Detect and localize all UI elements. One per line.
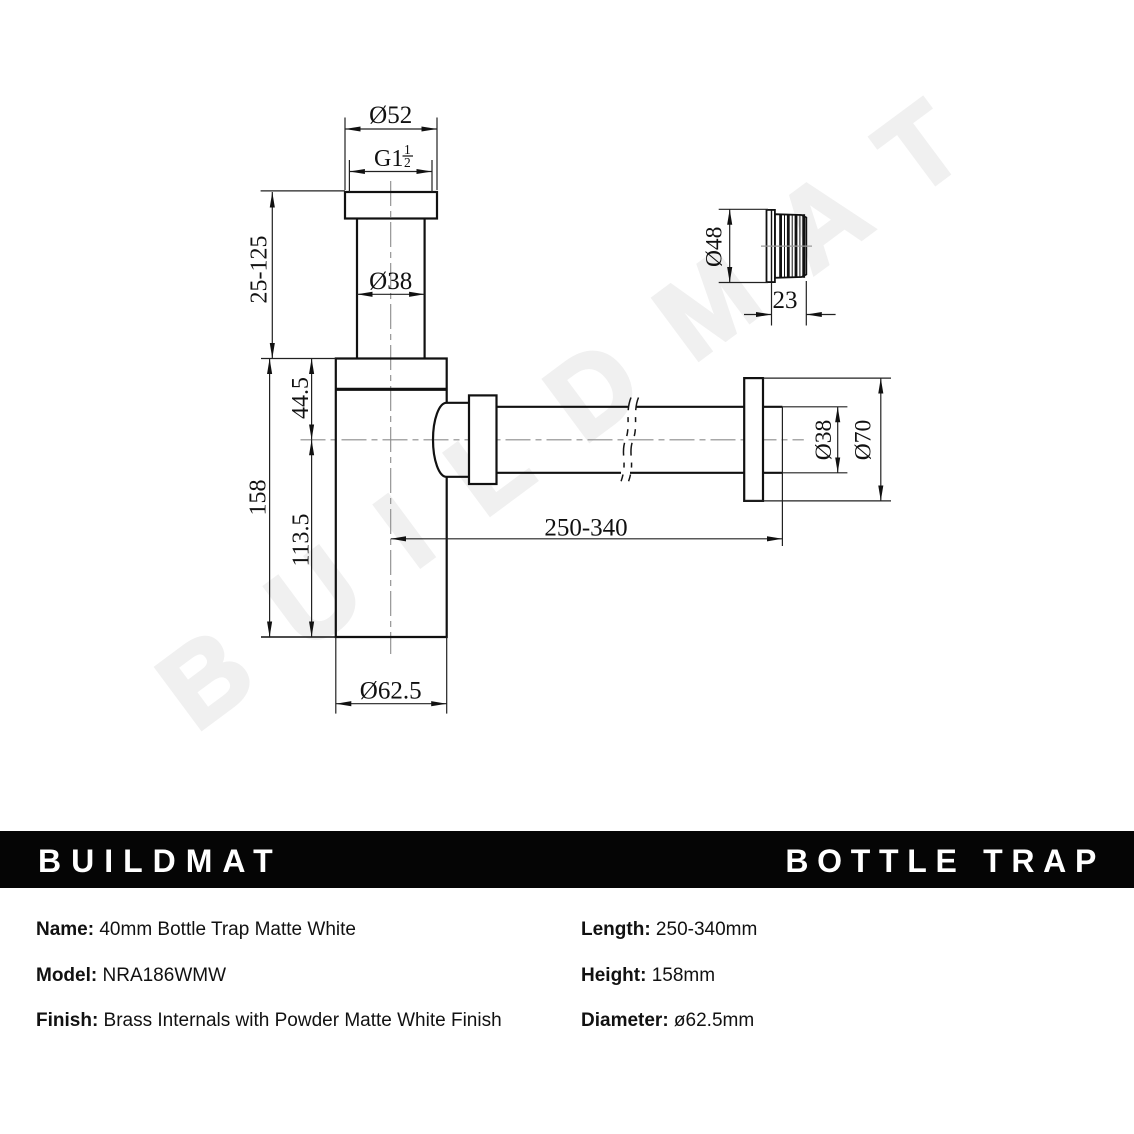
svg-text:Ø48: Ø48	[702, 227, 728, 267]
svg-text:250-340: 250-340	[544, 515, 627, 542]
svg-text:Ø52: Ø52	[369, 102, 412, 129]
svg-text:Ø38: Ø38	[811, 420, 837, 460]
svg-text:44.5: 44.5	[288, 377, 314, 419]
svg-text:2: 2	[404, 155, 411, 170]
svg-text:Ø70: Ø70	[851, 420, 877, 460]
svg-text:158: 158	[246, 480, 272, 516]
svg-text:Ø38: Ø38	[369, 268, 412, 295]
svg-text:23: 23	[773, 287, 798, 314]
svg-text:113.5: 113.5	[289, 513, 315, 566]
svg-text:25-125: 25-125	[247, 236, 273, 304]
svg-text:Ø62.5: Ø62.5	[360, 678, 422, 705]
svg-text:G1: G1	[374, 146, 403, 172]
